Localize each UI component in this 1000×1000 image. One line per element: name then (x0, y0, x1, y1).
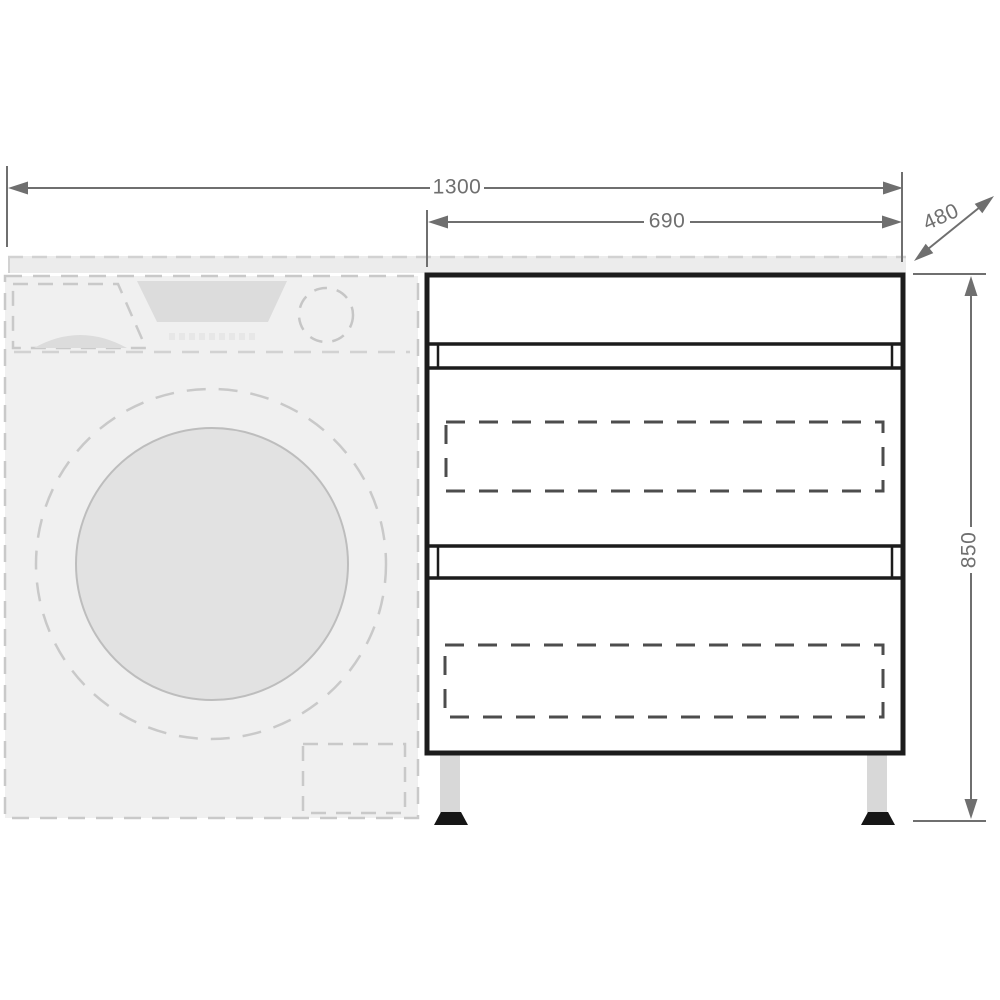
diagram-graphics (0, 0, 1000, 1000)
cabinet-foot-right (861, 812, 895, 825)
arrowhead-right (883, 182, 903, 195)
arrowhead-left (8, 182, 28, 195)
arrowhead-bottom (965, 799, 978, 819)
dimension-drawing-canvas: 1300 690 480 850 (0, 0, 1000, 1000)
cabinet-foot-left (434, 812, 468, 825)
washer-display (137, 281, 287, 322)
arrowhead-left (428, 216, 448, 229)
dimension-label-cabinet-height: 850 (959, 532, 980, 569)
dimension-label-cabinet-width: 690 (649, 211, 686, 232)
cabinet-leg-right (867, 754, 887, 813)
cabinet-leg-left (440, 754, 460, 813)
vanity-cabinet (427, 275, 903, 825)
countertop-slab (8, 256, 906, 273)
washer-buttons-row (169, 333, 255, 340)
cabinet-carcass-outline (427, 275, 903, 753)
washer-drum-window (76, 428, 348, 700)
arrowhead-upper (975, 196, 994, 213)
countertop (8, 256, 906, 273)
dimension-label-total-width: 1300 (433, 177, 482, 198)
arrowhead-right (882, 216, 902, 229)
washing-machine (5, 276, 418, 818)
arrowhead-top (965, 276, 978, 296)
